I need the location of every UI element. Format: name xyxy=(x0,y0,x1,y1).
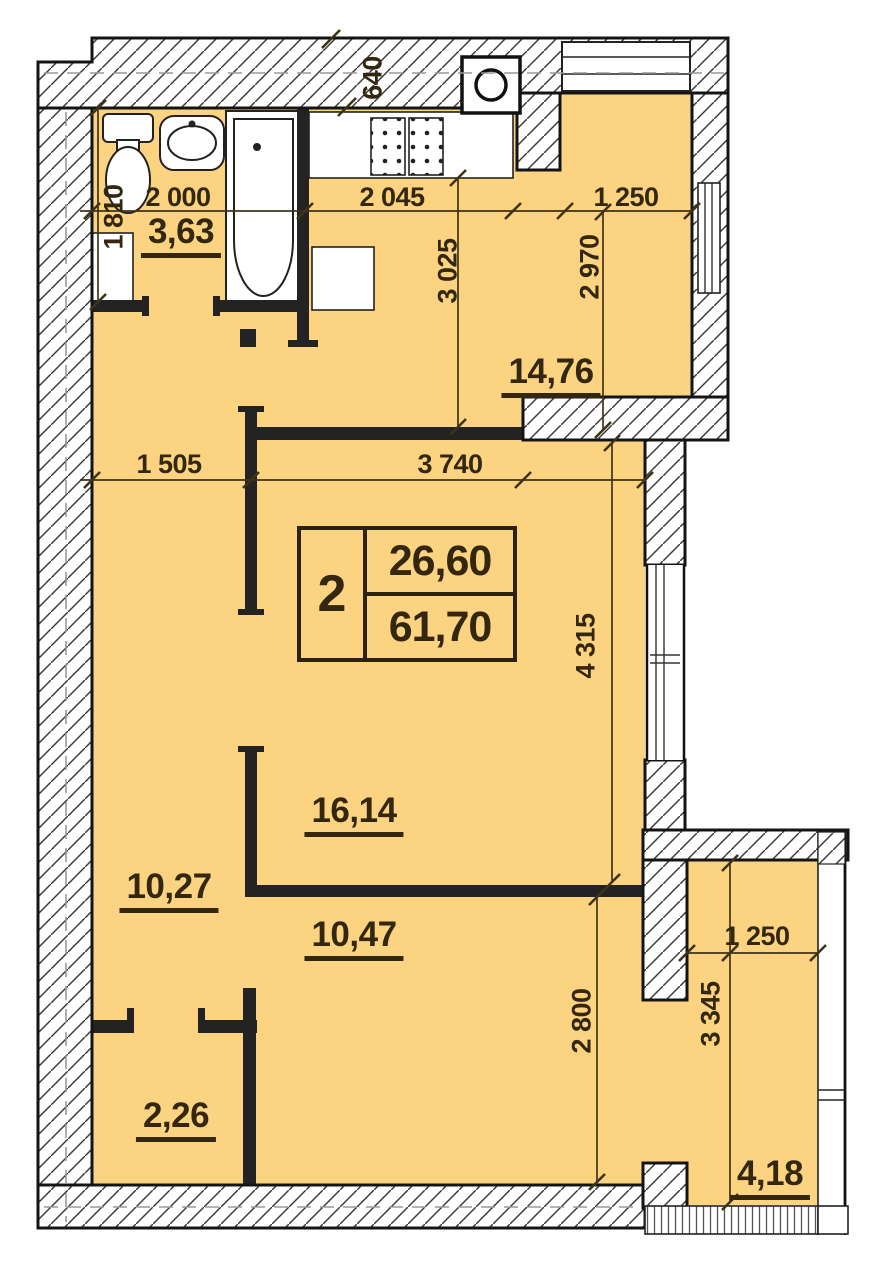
fridge-symbol xyxy=(312,247,374,310)
dim-2970: 2 970 xyxy=(575,234,606,299)
unit-living-area: 26,60 xyxy=(367,530,513,596)
area-storage: 2,26 xyxy=(136,1096,216,1142)
dim-1250-balcony: 1 250 xyxy=(724,921,789,952)
vent-icon xyxy=(462,57,520,113)
area-balcony: 4,18 xyxy=(730,1154,810,1200)
bathtub-icon xyxy=(226,111,301,309)
dim-1250-top: 1 250 xyxy=(593,182,658,213)
dim-3345: 3 345 xyxy=(696,981,727,1046)
dim-3740: 3 740 xyxy=(417,449,482,480)
balcony-sill xyxy=(645,1206,818,1234)
area-hallway: 10,27 xyxy=(119,867,218,913)
unit-total-area: 61,70 xyxy=(367,596,513,658)
right-upper-window xyxy=(698,183,720,293)
area-bedroom: 10,47 xyxy=(304,915,403,961)
dim-640: 640 xyxy=(358,56,389,100)
dim-3025: 3 025 xyxy=(433,238,464,303)
area-living-room: 16,14 xyxy=(304,791,403,837)
dim-4315: 4 315 xyxy=(571,613,602,678)
area-kitchen-living: 14,76 xyxy=(501,352,600,398)
sink-icon xyxy=(160,116,224,170)
right-mid-window xyxy=(646,565,684,760)
dim-2000: 2 000 xyxy=(145,182,210,213)
dim-1505: 1 505 xyxy=(136,449,201,480)
dim-1810: 1 810 xyxy=(99,184,130,249)
unit-number: 2 xyxy=(301,530,367,658)
dim-2800: 2 800 xyxy=(567,988,598,1053)
top-window xyxy=(562,42,690,91)
dim-2045: 2 045 xyxy=(359,182,424,213)
unit-info-box: 2 26,60 61,70 xyxy=(297,526,517,662)
floor-plan: 3,63 14,76 16,14 10,27 10,47 2,26 4,18 2… xyxy=(0,0,881,1280)
area-bathroom: 3,63 xyxy=(141,212,221,258)
